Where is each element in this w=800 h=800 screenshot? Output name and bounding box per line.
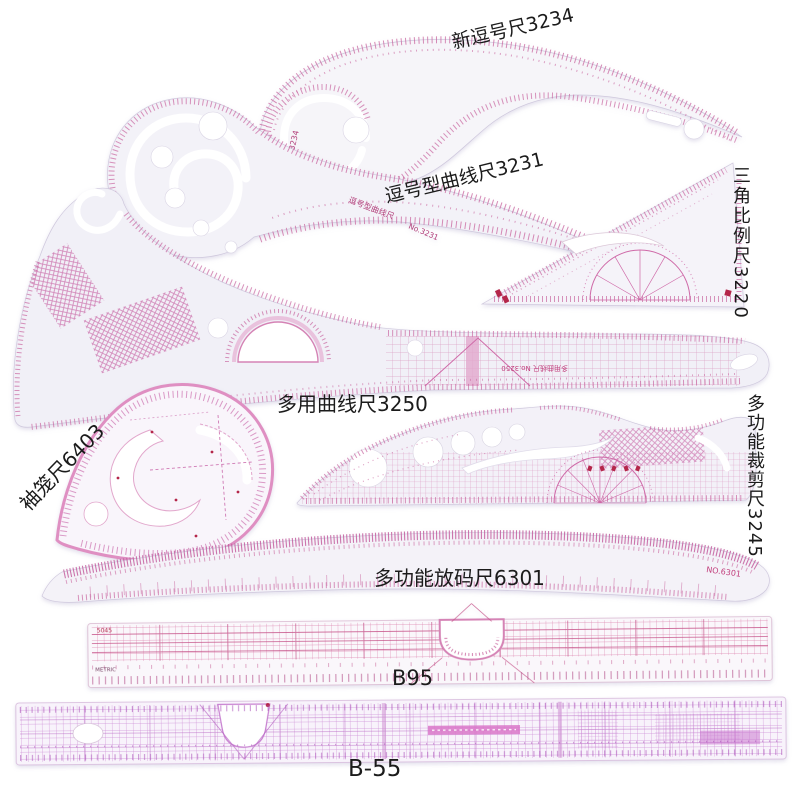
ruler-b55-oval-hole bbox=[73, 723, 103, 743]
ruler-3250-bar-grid bbox=[386, 336, 740, 386]
ruler-b95-metric: METRIC bbox=[95, 667, 116, 673]
ruler-3245-hatch-patch bbox=[599, 423, 705, 468]
ruler-3250-hole bbox=[407, 340, 423, 356]
product-photo-canvas: NO.3234 逗号型曲线尺 No.3231 bbox=[0, 0, 800, 800]
ruler-b95-code: 5045 bbox=[97, 627, 113, 634]
ruler-b95-u-cutout bbox=[440, 619, 504, 660]
ruler-6403-hole bbox=[84, 502, 108, 526]
ruler-b55 bbox=[16, 697, 786, 765]
ruler-b55-divider bbox=[558, 702, 562, 758]
label-ruler-3250: 多用曲线尺3250 bbox=[277, 388, 428, 417]
ruler-b55-dense-patch bbox=[578, 710, 618, 748]
label-ruler-3220: 三角比例尺3220 bbox=[727, 166, 753, 320]
ruler-3250-hole bbox=[208, 318, 228, 338]
label-ruler-b95: B95 bbox=[392, 666, 433, 690]
ruler-3234-hole bbox=[343, 117, 369, 143]
ruler-b55-label-block bbox=[428, 725, 520, 735]
ruler-3234-hole bbox=[684, 119, 704, 139]
label-ruler-6301: 多功能放码尺6301 bbox=[374, 562, 545, 591]
ruler-b55-pink-patch bbox=[700, 730, 760, 744]
label-ruler-3245: 多功能裁剪尺3245 bbox=[741, 394, 767, 558]
ruler-3245 bbox=[297, 406, 756, 506]
ruler-b55-divider bbox=[382, 703, 386, 759]
ruler-3250-print: 多用曲线尺 No.3250 bbox=[501, 364, 568, 373]
label-ruler-b55: B-55 bbox=[348, 756, 401, 782]
